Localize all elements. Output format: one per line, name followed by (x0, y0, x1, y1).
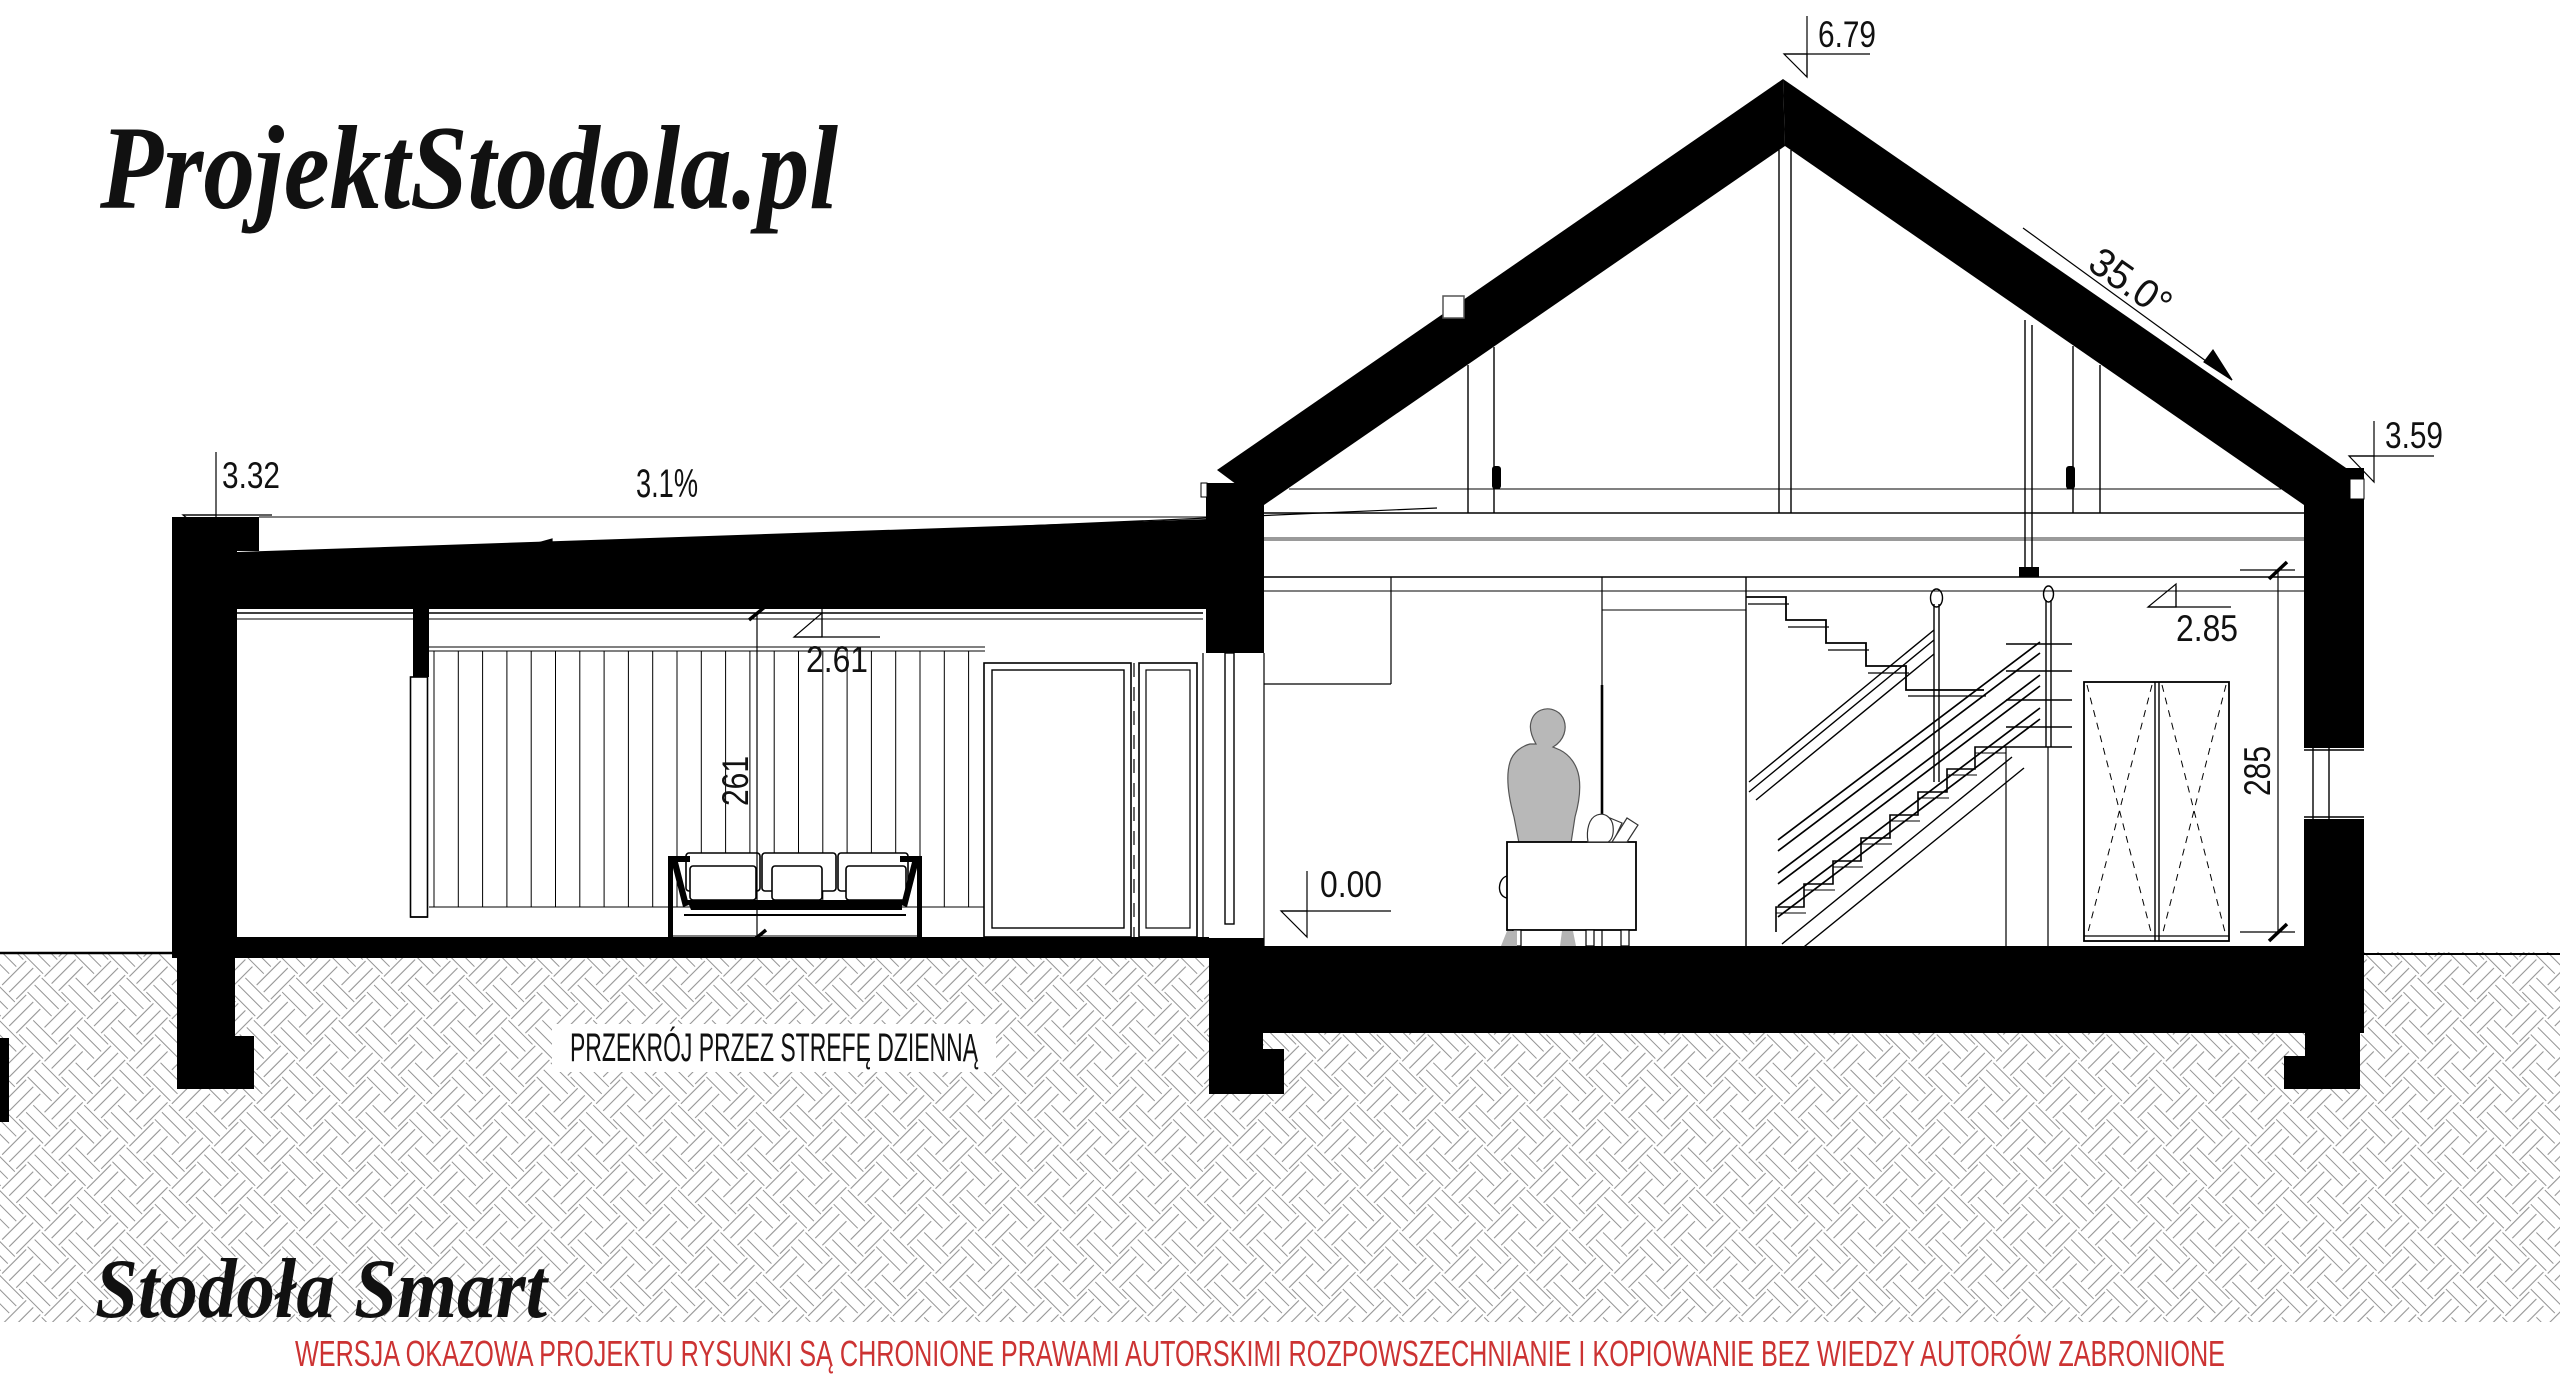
svg-text:0.00: 0.00 (1320, 864, 1382, 905)
svg-text:285: 285 (2237, 746, 2278, 796)
svg-text:PRZEKRÓJ PRZEZ STREFĘ DZIENNĄ: PRZEKRÓJ PRZEZ STREFĘ DZIENNĄ (570, 1025, 978, 1070)
svg-text:Stodoła Smart: Stodoła Smart (95, 1242, 549, 1336)
svg-text:3.1%: 3.1% (636, 462, 698, 506)
svg-text:3.32: 3.32 (222, 455, 280, 496)
svg-text:3.59: 3.59 (2385, 415, 2443, 456)
svg-text:6.79: 6.79 (1818, 14, 1876, 55)
svg-text:WERSJA OKAZOWA PROJEKTU RYSUNK: WERSJA OKAZOWA PROJEKTU RYSUNKI SĄ CHRON… (295, 1333, 2225, 1374)
svg-text:2.61: 2.61 (806, 639, 868, 680)
svg-text:261: 261 (715, 756, 756, 806)
svg-text:2.85: 2.85 (2176, 608, 2238, 649)
svg-text:ProjektStodola.pl: ProjektStodola.pl (99, 101, 838, 234)
